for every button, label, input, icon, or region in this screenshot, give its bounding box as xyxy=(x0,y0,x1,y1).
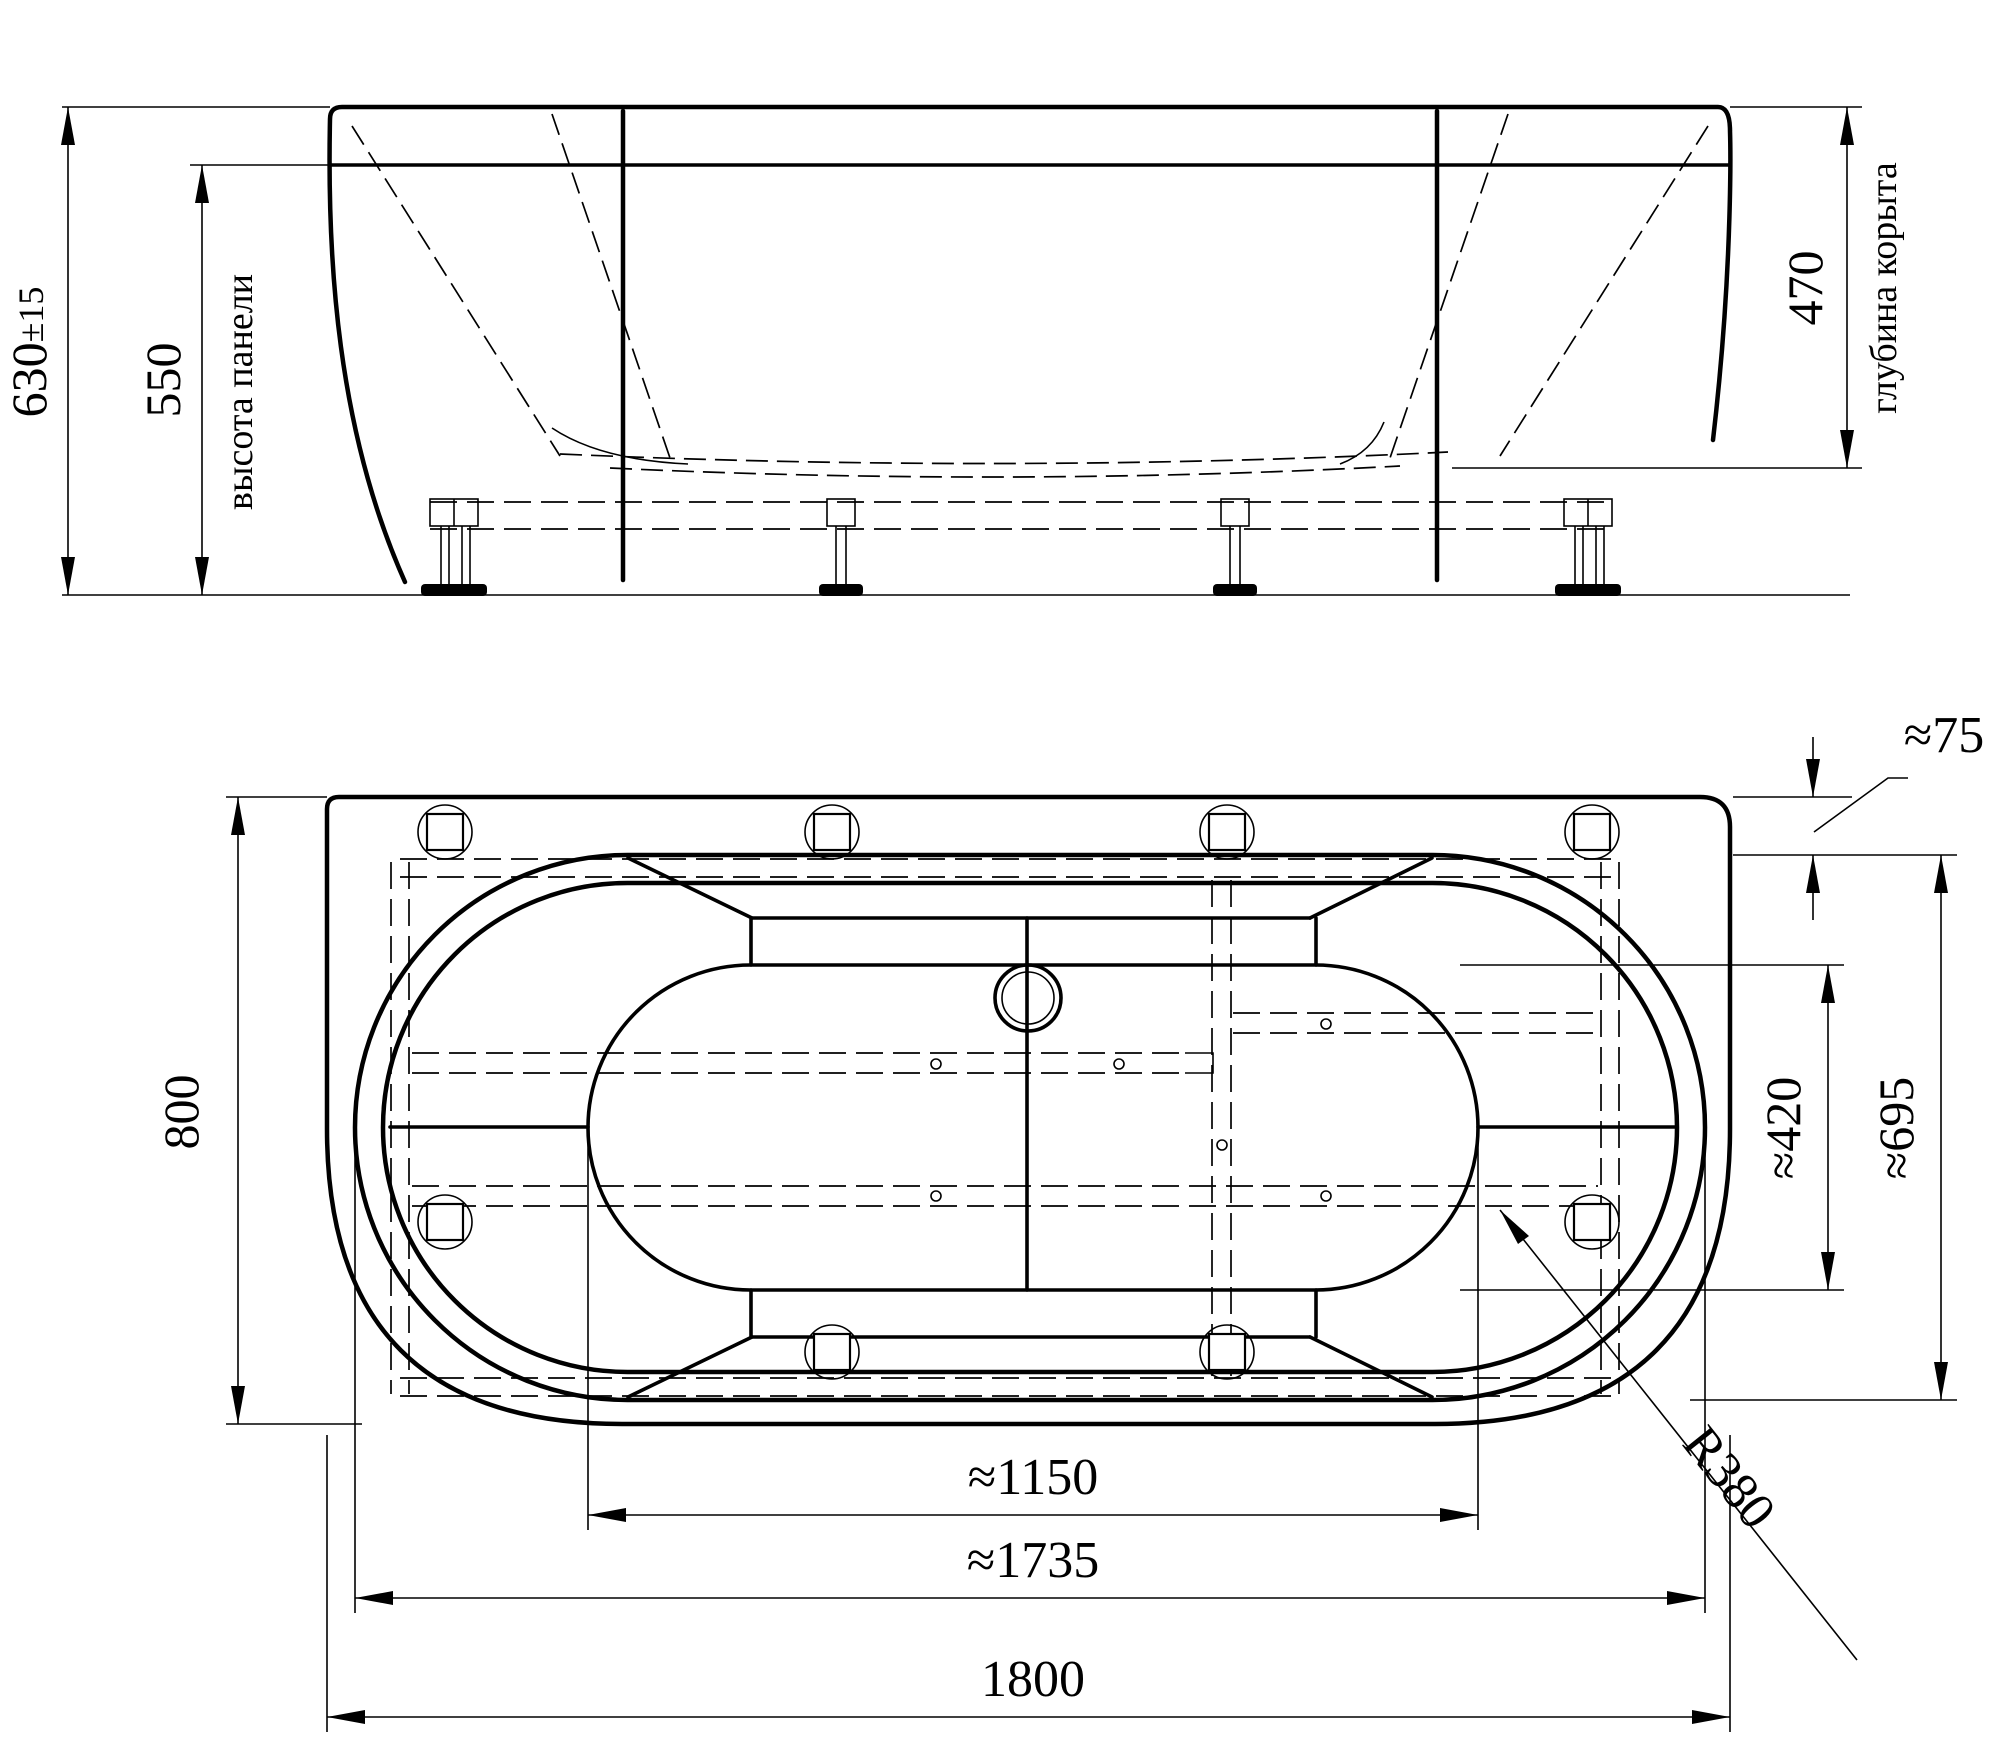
outer-length-value: ≈1735 xyxy=(967,1532,1100,1589)
foot-symbol xyxy=(1200,1325,1254,1379)
foot-symbol xyxy=(1200,805,1254,859)
foot-symbol xyxy=(805,1325,859,1379)
dimension-corner-radius: R380 xyxy=(1500,1210,1857,1660)
dimension-panel-height: 550 высота панели xyxy=(135,165,332,595)
panel-height-label: высота панели xyxy=(219,274,261,510)
overall-length-value: 1800 xyxy=(981,1651,1085,1708)
hidden-bowl-lines xyxy=(352,114,1708,529)
foot-symbol xyxy=(1565,805,1619,859)
panel-height-value: 550 xyxy=(135,343,191,418)
drawing-sheet: 630±15 550 высота панели 470 глубина кор… xyxy=(0,0,2000,1738)
foot-symbol xyxy=(1565,1195,1619,1249)
dimension-inner-length: ≈1150 xyxy=(588,1130,1478,1530)
foot-symbol xyxy=(418,805,472,859)
feet-front xyxy=(421,499,1621,596)
plan-view: 800 ≈75 ≈420 ≈695 xyxy=(153,707,1984,1732)
width-value: 800 xyxy=(153,1075,209,1150)
outer-width-value: ≈695 xyxy=(1868,1077,1924,1179)
corner-radius-value: R380 xyxy=(1672,1416,1787,1540)
rim-offset-value: ≈75 xyxy=(1904,707,1985,764)
dimension-bowl-depth: 470 глубина корыта xyxy=(1452,107,1905,468)
feet-plan xyxy=(418,805,1619,1379)
foot-symbol xyxy=(805,805,859,859)
bowl-depth-label: глубина корыта xyxy=(1863,162,1905,414)
bowl-bottom-visible-right xyxy=(1340,422,1384,464)
bowl-depth-value: 470 xyxy=(1777,251,1833,326)
inner-length-value: ≈1150 xyxy=(968,1449,1099,1506)
front-view: 630±15 550 высота панели 470 глубина кор… xyxy=(1,107,1905,596)
tub-outline-front xyxy=(330,107,1731,582)
inner-width-value: ≈420 xyxy=(1755,1077,1811,1179)
overall-height-value: 630±15 xyxy=(1,287,57,418)
rim-steps xyxy=(390,858,1677,1397)
dimension-width: 800 xyxy=(153,797,362,1424)
foot-symbol xyxy=(418,1195,472,1249)
